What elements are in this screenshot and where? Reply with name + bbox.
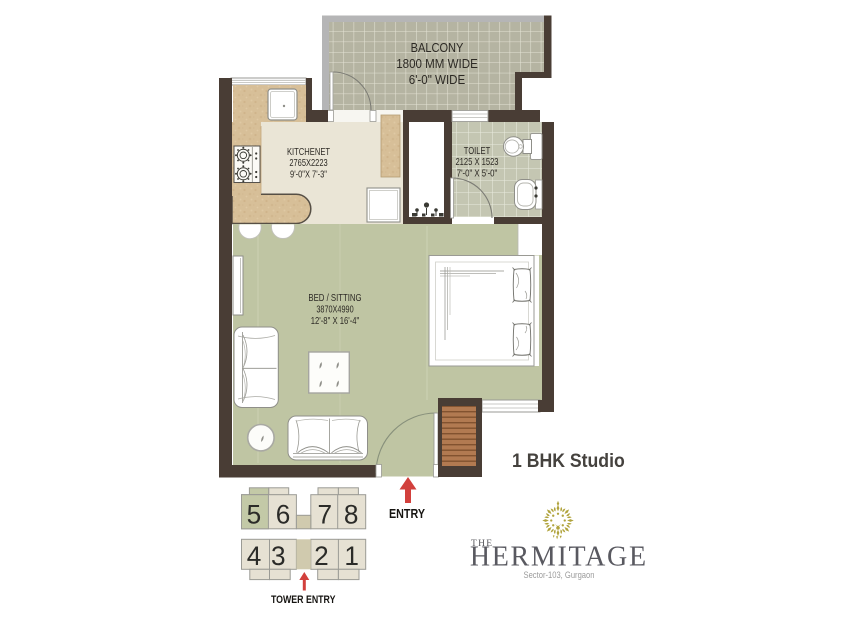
- svg-text:1800 MM WIDE: 1800 MM WIDE: [396, 56, 478, 71]
- svg-text:1 BHK Studio: 1 BHK Studio: [512, 449, 625, 471]
- svg-text:7'-0" X 5'-0": 7'-0" X 5'-0": [457, 167, 498, 178]
- svg-text:9'-0"X 7'-3": 9'-0"X 7'-3": [290, 168, 327, 179]
- svg-text:2: 2: [314, 541, 329, 571]
- svg-text:KITCHENET: KITCHENET: [287, 146, 331, 157]
- svg-text:6: 6: [276, 499, 291, 529]
- svg-text:Sector-103, Gurgaon: Sector-103, Gurgaon: [524, 569, 595, 580]
- svg-text:BALCONY: BALCONY: [411, 40, 464, 55]
- svg-text:12'-8" X 16'-4": 12'-8" X 16'-4": [311, 315, 360, 326]
- svg-text:HERMITAGE: HERMITAGE: [470, 542, 648, 573]
- svg-text:TOILET: TOILET: [464, 145, 491, 156]
- svg-text:2125 X 1523: 2125 X 1523: [455, 156, 498, 167]
- svg-text:BED / SITTING: BED / SITTING: [308, 292, 361, 303]
- svg-text:TOWER ENTRY: TOWER ENTRY: [271, 594, 336, 606]
- svg-text:7: 7: [318, 499, 333, 529]
- svg-text:3: 3: [271, 541, 286, 571]
- svg-text:8: 8: [344, 499, 359, 529]
- svg-text:3870X4990: 3870X4990: [316, 303, 353, 314]
- svg-text:4: 4: [247, 541, 262, 571]
- svg-text:ENTRY: ENTRY: [389, 507, 425, 521]
- svg-text:6'-0" WIDE: 6'-0" WIDE: [409, 72, 465, 87]
- svg-text:1: 1: [344, 541, 359, 571]
- svg-text:5: 5: [247, 499, 262, 529]
- svg-text:2765X2223: 2765X2223: [289, 157, 327, 168]
